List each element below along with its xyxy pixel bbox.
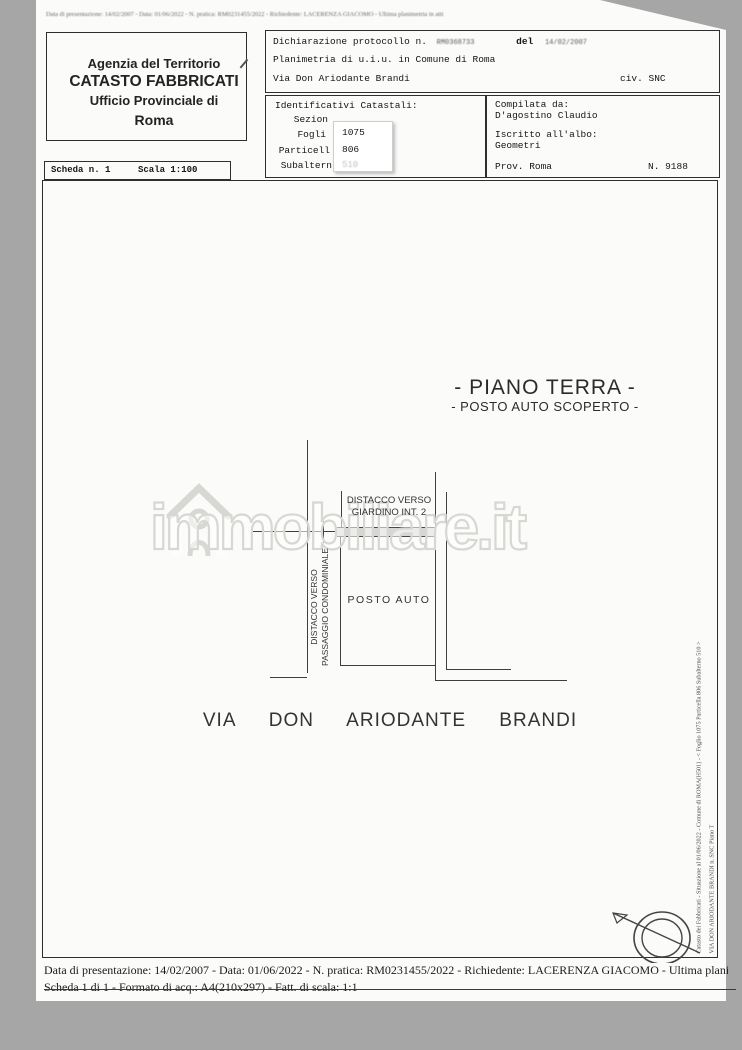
footer-line2: Scheda 1 di 1 - Formato di acq.: A4(210x… — [44, 980, 728, 995]
page-cut-line — [44, 989, 736, 990]
declaration-label: Dichiarazione protocollo n. — [273, 36, 427, 47]
agency-line3: Ufficio Provinciale di — [54, 92, 254, 110]
protocol-date: 14/02/2007 — [545, 39, 587, 47]
passaggio-label-line1: DISTACCO VERSO — [309, 542, 320, 672]
agency-line1: Agenzia del Territorio — [54, 55, 254, 72]
scan-header-line: Data di presentazione: 14/02/2007 - Data… — [46, 11, 476, 18]
footer-line1: Data di presentazione: 14/02/2007 - Data… — [44, 963, 728, 978]
sidebar-meta-line2: VIA DON ARIODANTE BRANDI n. SNC Piano T — [709, 596, 716, 954]
del-label: del — [516, 36, 533, 47]
declaration-civ: civ. SNC — [620, 73, 666, 84]
agency-line2: CATASTO FABBRICATI — [54, 72, 254, 92]
declaration-row2: Planimetria di u.i.u. in Comune di Roma — [273, 54, 495, 65]
posto-auto-label: POSTO AUTO — [328, 594, 450, 606]
scala-label: Scala 1:100 — [138, 165, 197, 175]
catastali-title: Identificativi Catastali: — [275, 100, 418, 111]
scanned-cadastral-sheet: Data di presentazione: 14/02/2007 - Data… — [0, 0, 742, 1050]
catastali-label-sezione: Sezion — [262, 114, 328, 125]
catastali-label-particella: Particell — [262, 145, 330, 156]
scheda-label: Scheda n. 1 — [51, 165, 110, 175]
subalterno-value: 510 — [342, 160, 358, 170]
street-label: VIA DON ARIODANTE BRANDI — [160, 710, 620, 732]
declaration-address: Via Don Ariodante Brandi — [273, 73, 410, 84]
albo-value: Geometri — [495, 140, 541, 151]
drawing-frame — [42, 180, 718, 958]
catastali-label-subalterno: Subaltern — [262, 160, 332, 171]
declaration-row1: Dichiarazione protocollo n. RM0368733 de… — [273, 36, 713, 47]
right-wall-outer-horizontal — [435, 680, 567, 681]
passaggio-label-line2: PASSAGGIO CONDOMINIALE — [320, 542, 331, 672]
plan-subtitle: - POSTO AUTO SCOPERTO - — [345, 399, 742, 414]
right-wall-inner-horizontal — [446, 669, 511, 670]
agency-title-block: Agenzia del Territorio CATASTO FABBRICAT… — [54, 55, 254, 130]
giardino-label: DISTACCO VERSO GIARDINO INT. 2 — [328, 495, 450, 519]
agency-line4: Roma — [54, 110, 254, 130]
sidebar-meta-line1: Catasto dei Fabbricati - Situazione al 0… — [696, 596, 703, 954]
albo-number: N. 9188 — [648, 161, 688, 172]
plan-title: - PIANO TERRA - — [345, 376, 742, 400]
particella-value: 806 — [342, 144, 359, 155]
albo-label: Iscritto all'albo: — [495, 129, 598, 140]
giardino-label-line2: GIARDINO INT. 2 — [328, 507, 450, 519]
posto-auto-bottom-edge — [340, 665, 436, 666]
boundary-tick-bottom-left — [270, 677, 307, 678]
giardino-label-line1: DISTACCO VERSO — [328, 495, 450, 507]
protocol-number: RM0368733 — [437, 39, 475, 47]
catastali-label-foglio: Fogli — [262, 129, 326, 140]
passaggio-label: DISTACCO VERSO PASSAGGIO CONDOMINIALE — [309, 542, 333, 672]
prov-label: Prov. Roma — [495, 161, 552, 172]
compilata-label: Compilata da: — [495, 99, 569, 110]
compilata-name: D'agostino Claudio — [495, 110, 598, 121]
foglio-value: 1075 — [342, 127, 365, 138]
